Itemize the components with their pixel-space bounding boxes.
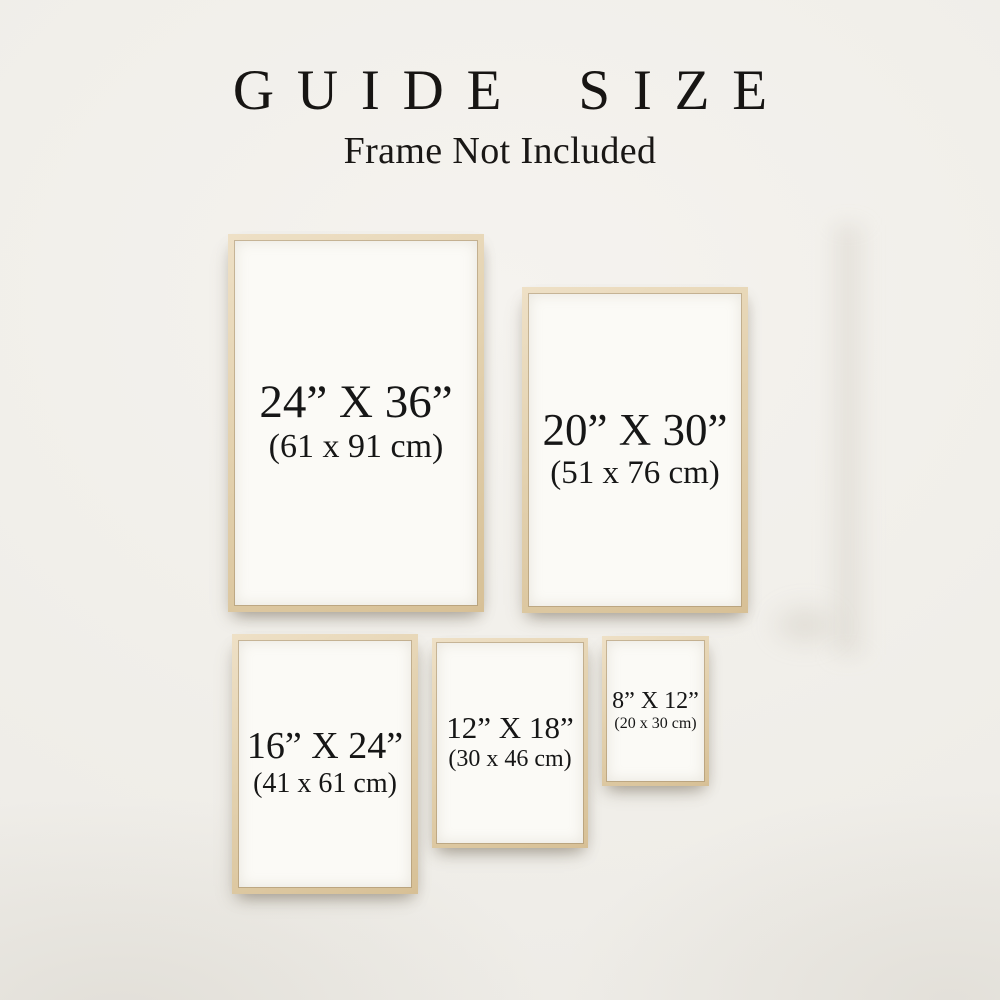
frame-16x24: 16” X 24” (41 x 61 cm) (232, 634, 418, 894)
frame-20x30: 20” X 30” (51 x 76 cm) (522, 287, 748, 613)
poster-12x18: 12” X 18” (30 x 46 cm) (437, 643, 583, 843)
wall-shadow (750, 590, 860, 660)
frame-12x18: 12” X 18” (30 x 46 cm) (432, 638, 588, 848)
size-label-inches: 8” X 12” (612, 689, 699, 714)
page-subtitle: Frame Not Included (0, 129, 1000, 173)
wall-shadow (828, 225, 870, 655)
size-label-centimeters: (41 x 61 cm) (253, 767, 397, 801)
size-label-centimeters: (51 x 76 cm) (550, 454, 720, 494)
size-label-inches: 20” X 30” (543, 407, 728, 454)
size-label-centimeters: (61 x 91 cm) (269, 427, 444, 468)
poster-8x12: 8” X 12” (20 x 30 cm) (607, 641, 704, 781)
frame-8x12: 8” X 12” (20 x 30 cm) (602, 636, 709, 786)
size-label-inches: 12” X 18” (446, 712, 573, 745)
header: GUIDE SIZE Frame Not Included (0, 58, 1000, 173)
poster-20x30: 20” X 30” (51 x 76 cm) (529, 294, 741, 606)
poster-16x24: 16” X 24” (41 x 61 cm) (239, 641, 411, 887)
size-label-inches: 24” X 36” (259, 378, 452, 427)
frame-24x36: 24” X 36” (61 x 91 cm) (228, 234, 484, 612)
size-label-inches: 16” X 24” (247, 727, 403, 767)
page-title: GUIDE SIZE (0, 58, 1000, 123)
size-guide-image: GUIDE SIZE Frame Not Included 24” X 36” … (0, 0, 1000, 1000)
size-label-centimeters: (20 x 30 cm) (614, 714, 696, 733)
size-label-centimeters: (30 x 46 cm) (448, 745, 571, 774)
poster-24x36: 24” X 36” (61 x 91 cm) (235, 241, 477, 605)
